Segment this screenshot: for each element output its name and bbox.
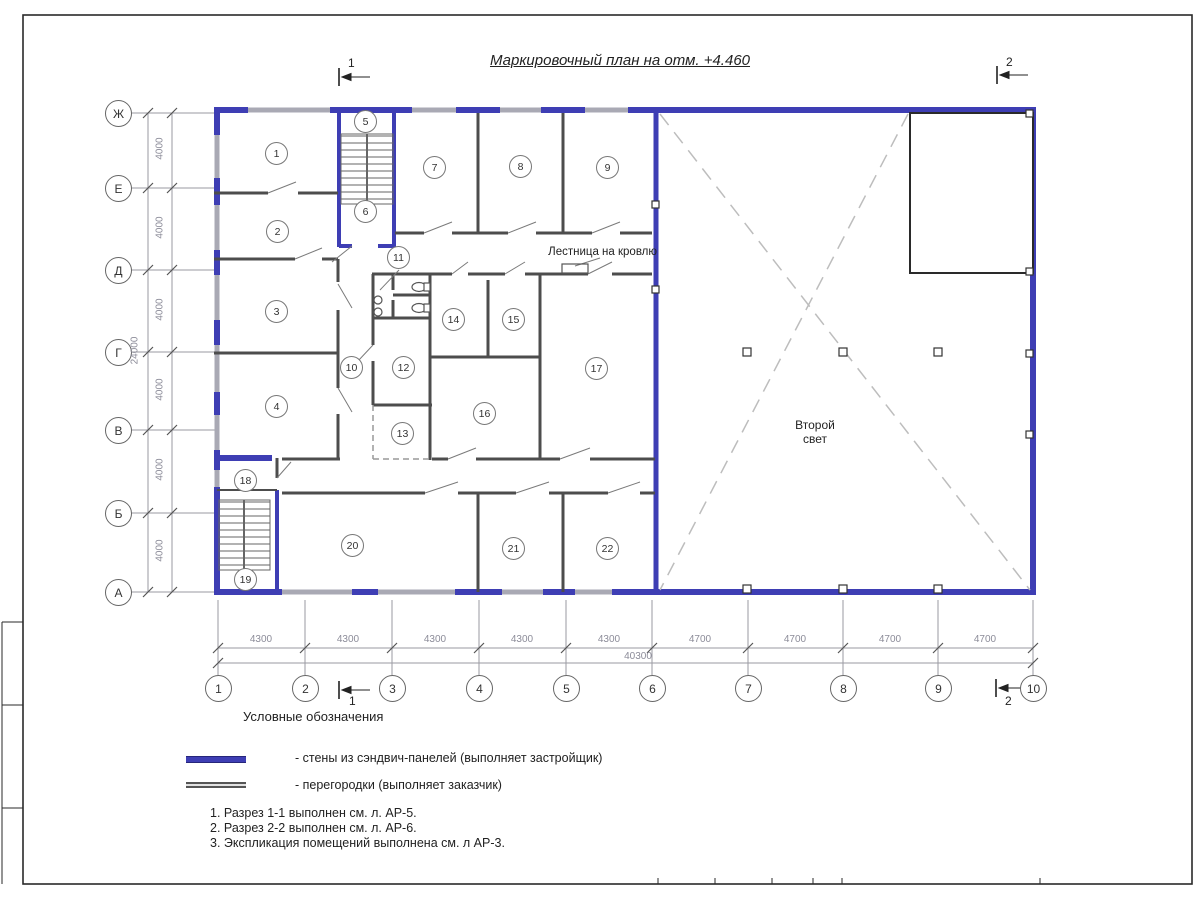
axis-col-7: 7 (735, 675, 762, 702)
dim-col-1: 4300 (239, 634, 283, 645)
second-light-label: Второй свет (775, 418, 855, 446)
dim-col-7: 4700 (773, 634, 817, 645)
room-tag-18: 18 (234, 469, 257, 492)
dim-row-6: 4000 (155, 524, 166, 578)
dim-row-5: 4000 (155, 443, 166, 497)
room-tag-11: 11 (387, 246, 410, 269)
drawing-sheet: Маркировочный план на отм. +4.460 1 2 1 … (0, 0, 1200, 900)
axis-col-5: 5 (553, 675, 580, 702)
dim-col-5: 4300 (587, 634, 631, 645)
note-3: 3. Экспликация помещений выполнена см. л… (210, 836, 505, 851)
room-tag-19: 19 (234, 568, 257, 591)
drawing-title: Маркировочный план на отм. +4.460 (430, 52, 810, 69)
legend-heading: Условные обозначения (243, 709, 383, 724)
room-tag-16: 16 (473, 402, 496, 425)
room-tag-7: 7 (423, 156, 446, 179)
axis-row-g: Г (105, 339, 132, 366)
section-mark-2-top: 2 (1006, 55, 1013, 69)
room-tag-20: 20 (341, 534, 364, 557)
dim-row-4: 4000 (155, 363, 166, 417)
room-tag-14: 14 (442, 308, 465, 331)
plan-linework (0, 0, 1200, 900)
axis-col-10: 10 (1020, 675, 1047, 702)
note-1: 1. Разрез 1-1 выполнен см. л. АР-5. (210, 806, 505, 821)
legend-swatch-sandwich-wall (186, 756, 246, 763)
section-mark-1-bottom: 1 (349, 694, 356, 708)
room-tag-3: 3 (265, 300, 288, 323)
dim-row-1: 4000 (155, 122, 166, 176)
dim-col-total: 40300 (616, 651, 660, 662)
axis-row-zh: Ж (105, 100, 132, 127)
axis-row-d: Д (105, 257, 132, 284)
roof-stairs-label: Лестница на кровлю (545, 246, 657, 258)
note-2: 2. Разрез 2-2 выполнен см. л. АР-6. (210, 821, 505, 836)
room-tag-2: 2 (266, 220, 289, 243)
section-mark-2-bottom: 2 (1005, 694, 1012, 708)
section-mark-1-top: 1 (348, 56, 355, 70)
dim-col-8: 4700 (868, 634, 912, 645)
axis-row-v: В (105, 417, 132, 444)
dim-col-9: 4700 (963, 634, 1007, 645)
legend-swatch-partition-wall (186, 782, 246, 788)
room-tag-21: 21 (502, 537, 525, 560)
dim-col-4: 4300 (500, 634, 544, 645)
room-tag-4: 4 (265, 395, 288, 418)
room-tag-9: 9 (596, 156, 619, 179)
axis-col-1: 1 (205, 675, 232, 702)
legend-label-sandwich-wall: - стены из сэндвич-панелей (выполняет за… (295, 751, 602, 765)
legend-label-partition-wall: - перегородки (выполняет заказчик) (295, 778, 502, 792)
dim-col-6: 4700 (678, 634, 722, 645)
room-tag-12: 12 (392, 356, 415, 379)
axis-row-b: Б (105, 500, 132, 527)
room-tag-22: 22 (596, 537, 619, 560)
dim-col-2: 4300 (326, 634, 370, 645)
axis-col-9: 9 (925, 675, 952, 702)
axis-col-6: 6 (639, 675, 666, 702)
dim-row-total: 24000 (130, 324, 141, 378)
room-tag-1: 1 (265, 142, 288, 165)
axis-col-2: 2 (292, 675, 319, 702)
dim-col-3: 4300 (413, 634, 457, 645)
dim-row-3: 4000 (155, 283, 166, 337)
axis-col-8: 8 (830, 675, 857, 702)
dim-row-2: 4000 (155, 201, 166, 255)
room-tag-13: 13 (391, 422, 414, 445)
axis-col-4: 4 (466, 675, 493, 702)
axis-row-a: А (105, 579, 132, 606)
room-tag-8: 8 (509, 155, 532, 178)
room-tag-6: 6 (354, 200, 377, 223)
room-tag-5: 5 (354, 110, 377, 133)
axis-col-3: 3 (379, 675, 406, 702)
room-tag-15: 15 (502, 308, 525, 331)
notes-block: 1. Разрез 1-1 выполнен см. л. АР-5. 2. Р… (210, 806, 505, 851)
axis-row-e: Е (105, 175, 132, 202)
room-tag-17: 17 (585, 357, 608, 380)
room-tag-10: 10 (340, 356, 363, 379)
